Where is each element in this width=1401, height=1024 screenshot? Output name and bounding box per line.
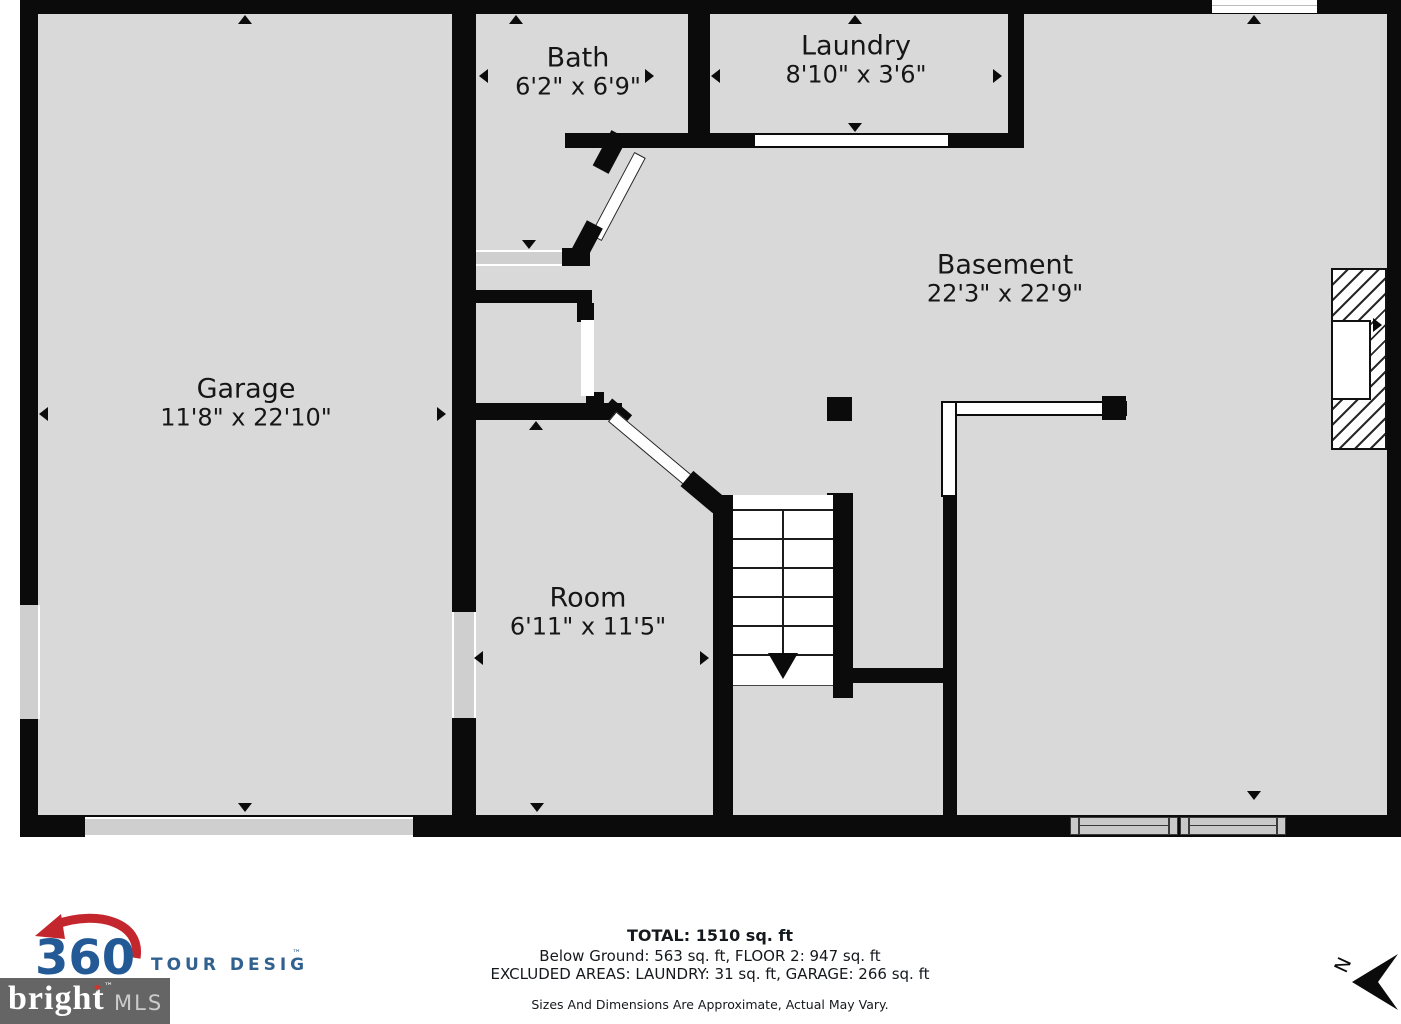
room-name: Bath xyxy=(515,43,641,74)
measure-arrow xyxy=(529,421,543,430)
window xyxy=(1189,817,1277,835)
breakdown-text: Below Ground: 563 sq. ft, FLOOR 2: 947 s… xyxy=(491,947,930,965)
window-mullion xyxy=(1079,825,1169,826)
measure-arrow xyxy=(509,15,523,24)
stair-direction-line xyxy=(782,509,784,659)
window xyxy=(20,605,40,719)
measure-arrow xyxy=(474,651,483,665)
star-icon: ✦ xyxy=(92,981,103,996)
measure-arrow xyxy=(848,123,862,132)
measure-arrow xyxy=(238,15,252,24)
room-dimensions: 22'3" x 22'9" xyxy=(927,281,1083,309)
logo-360-text: 360 xyxy=(35,930,135,982)
area-summary: TOTAL: 1510 sq. ft Below Ground: 563 sq.… xyxy=(491,926,930,1012)
wall-segment xyxy=(842,668,943,683)
north-compass: N xyxy=(1328,950,1401,1014)
measure-arrow xyxy=(645,69,654,83)
measure-arrow xyxy=(993,69,1002,83)
room-label-basement: Basement 22'3" x 22'9" xyxy=(927,250,1083,309)
room-dimensions: 6'2" x 6'9" xyxy=(515,74,641,102)
garage-door xyxy=(85,817,413,837)
logo-trademark: ™ xyxy=(292,949,301,959)
room-name: Garage xyxy=(160,374,332,405)
wall-segment xyxy=(943,497,957,817)
measure-arrow xyxy=(479,69,488,83)
window-mullion xyxy=(1212,5,1317,6)
excluded-areas-text: EXCLUDED AREAS: LAUNDRY: 31 sq. ft, GARA… xyxy=(491,965,930,983)
measure-arrow xyxy=(700,651,709,665)
room-name: Basement xyxy=(927,250,1083,281)
window xyxy=(452,612,476,718)
wall-segment xyxy=(1008,0,1024,148)
closet-door-opening xyxy=(581,320,594,396)
measure-arrow xyxy=(39,407,48,421)
railing-bar xyxy=(941,401,957,497)
window xyxy=(1079,817,1169,835)
window-post xyxy=(1070,817,1079,835)
laundry-opening xyxy=(755,135,948,146)
wall-segment xyxy=(1387,0,1401,837)
measure-arrow xyxy=(1247,15,1261,24)
railing-bar xyxy=(941,401,1127,416)
stair-down-arrow xyxy=(768,653,798,679)
floor-plan-page: Garage 11'8" x 22'10" Bath 6'2" x 6'9" L… xyxy=(0,0,1401,1024)
window-mullion xyxy=(1189,825,1277,826)
window-post xyxy=(1277,817,1286,835)
north-label: N xyxy=(1330,954,1356,976)
measure-arrow xyxy=(437,407,446,421)
wall-segment xyxy=(465,403,622,420)
wall-segment xyxy=(20,0,1401,14)
window-post xyxy=(1180,817,1189,835)
window-post xyxy=(1169,817,1178,835)
measure-arrow xyxy=(1373,318,1382,332)
firebox xyxy=(1331,320,1371,400)
wall-segment xyxy=(465,290,592,303)
wall-segment xyxy=(688,0,710,148)
disclaimer-text: Sizes And Dimensions Are Approximate, Ac… xyxy=(491,997,930,1012)
room-name: Room xyxy=(510,583,666,614)
window xyxy=(1212,0,1317,13)
room-name: Laundry xyxy=(785,31,926,62)
room-dimensions: 11'8" x 22'10" xyxy=(160,405,332,433)
room-label-bath: Bath 6'2" x 6'9" xyxy=(515,43,641,102)
measure-arrow xyxy=(530,803,544,812)
room-dimensions: 6'11" x 11'5" xyxy=(510,614,666,642)
total-area-text: TOTAL: 1510 sq. ft xyxy=(491,926,930,945)
pass-through-shelf xyxy=(476,250,562,266)
wall-segment xyxy=(713,495,733,837)
room-dimensions: 8'10" x 3'6" xyxy=(785,62,926,90)
room-label-garage: Garage 11'8" x 22'10" xyxy=(160,374,332,433)
bright-mls-logo: bright ✦ ™ MLS xyxy=(0,978,170,1024)
measure-arrow xyxy=(522,240,536,249)
wall-segment xyxy=(565,133,688,148)
measure-arrow xyxy=(238,803,252,812)
tour-designs-logo: 360 TOUR DESIGNS ™ xyxy=(15,908,305,982)
measure-arrow xyxy=(711,69,720,83)
mls-text: MLS xyxy=(114,991,163,1015)
bright-wordmark: bright xyxy=(8,980,105,1018)
railing-post xyxy=(1102,396,1126,420)
room-label-room: Room 6'11" x 11'5" xyxy=(510,583,666,642)
railing-post xyxy=(827,397,852,421)
logo-words-text: TOUR DESIGNS xyxy=(151,955,305,975)
north-arrow-icon xyxy=(1352,954,1398,1010)
measure-arrow xyxy=(848,15,862,24)
room-label-laundry: Laundry 8'10" x 3'6" xyxy=(785,31,926,90)
staircase xyxy=(733,495,833,686)
bright-trademark: ™ xyxy=(104,982,113,992)
measure-arrow xyxy=(1247,791,1261,800)
